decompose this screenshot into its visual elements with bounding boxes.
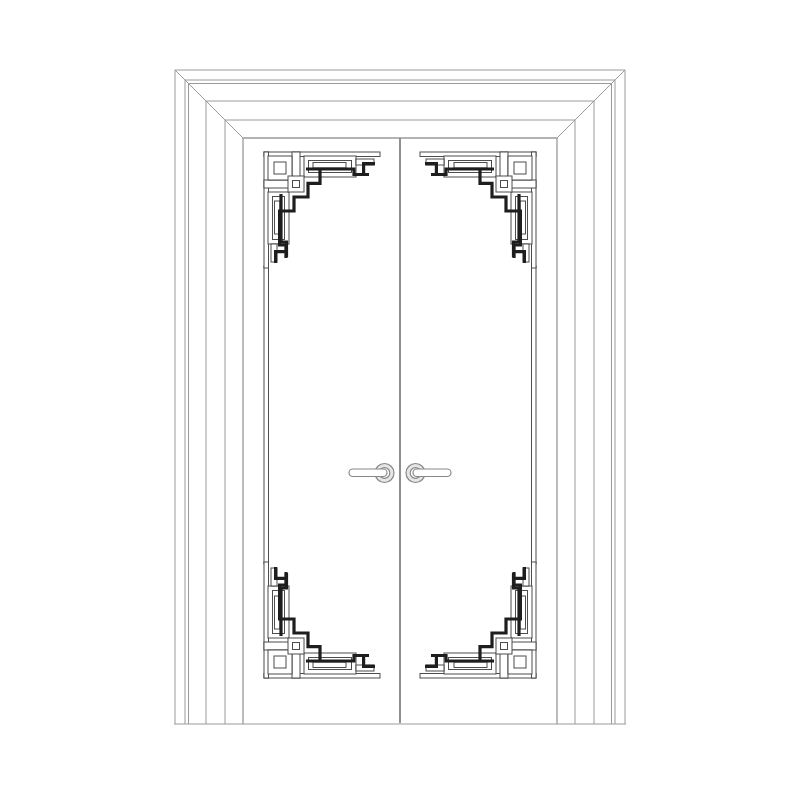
handle-lever xyxy=(413,469,451,477)
edge-trim-rail-left xyxy=(264,266,269,564)
door-elevation-drawing: Double door elevation drawing with Art D… xyxy=(0,0,800,800)
right-door-handle xyxy=(406,464,451,483)
left-door-handle xyxy=(349,464,394,483)
left-door-leaf xyxy=(264,152,380,678)
corner-ornament-top-left xyxy=(264,152,380,268)
edge-trim-rail-right xyxy=(532,266,537,564)
corner-ornament-bottom-right xyxy=(420,562,536,678)
drawing-canvas: Double door elevation drawing with Art D… xyxy=(0,0,800,800)
corner-ornament-top-right xyxy=(420,152,536,268)
right-door-leaf xyxy=(420,152,536,678)
handle-lever xyxy=(349,469,387,477)
door-leaves xyxy=(264,138,536,723)
corner-ornament-bottom-left xyxy=(264,562,380,678)
